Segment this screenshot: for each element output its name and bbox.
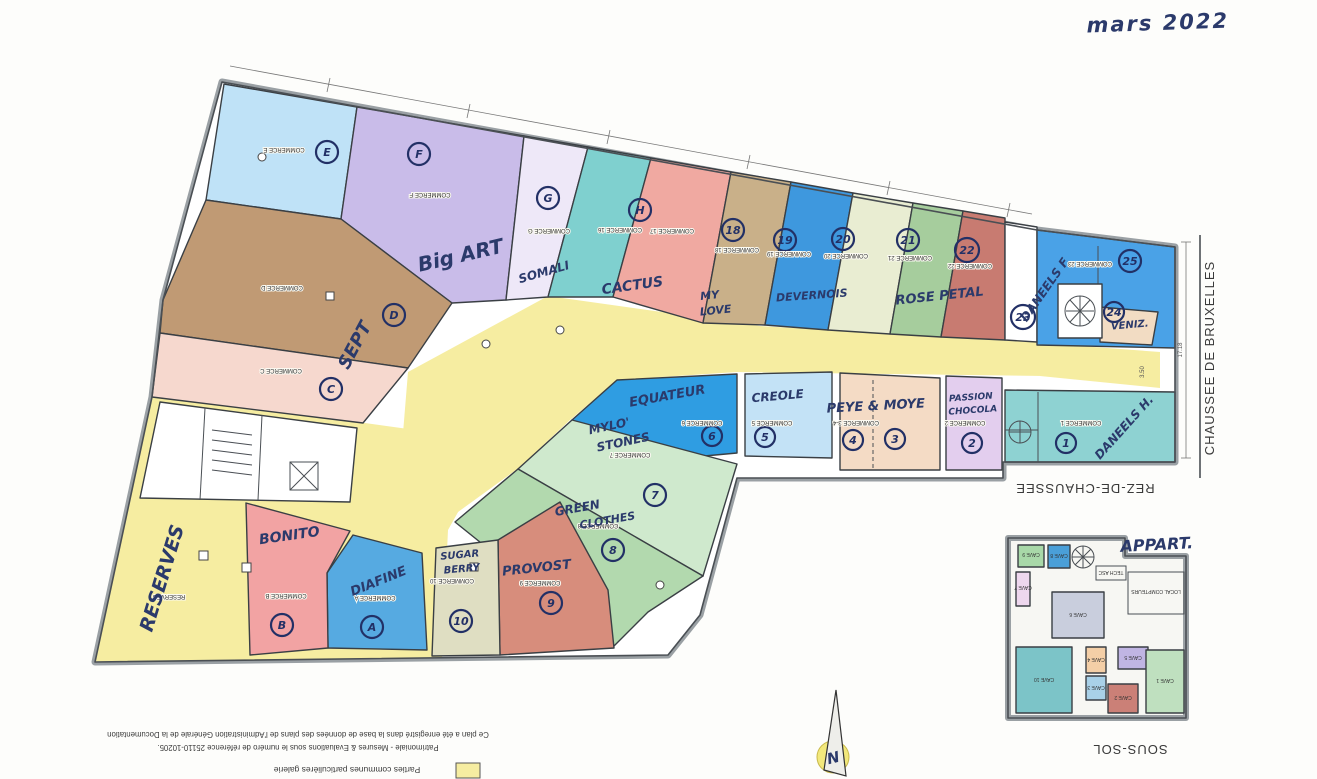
label-commerce-7: COMMERCE 7 (609, 451, 650, 457)
label-cave1: CAVE 1 (1156, 677, 1174, 683)
label-commerce-21: COMMERCE 21 (887, 254, 932, 260)
svg-text:4: 4 (848, 434, 857, 447)
label-cave3: CAVE 3 (1087, 684, 1105, 690)
svg-text:21: 21 (900, 234, 915, 247)
svg-text:20: 20 (835, 233, 851, 246)
label-commerce-20: COMMERCE 20 (823, 252, 868, 258)
label-cave10: CAVE 10 (1034, 676, 1054, 682)
svg-text:25: 25 (1122, 255, 1138, 268)
svg-text:G: G (543, 192, 552, 205)
svg-text:10: 10 (453, 615, 469, 628)
label-cave8: CAVE 8 (1050, 552, 1068, 558)
label-commerce-E: COMMERCE E (263, 146, 304, 152)
label-compteurs: LOCAL COMPTEURS (1131, 588, 1181, 594)
zone-A (327, 535, 427, 650)
svg-text:F: F (415, 148, 423, 161)
label-commerce-17: COMMERCE 17 (649, 227, 694, 233)
label-cave5: CAVE 5 (1124, 654, 1142, 660)
label-commerce-19: COMMERCE 19 (766, 250, 811, 256)
shop-name-my-love-1: MY (700, 288, 721, 303)
svg-text:H: H (635, 204, 644, 217)
svg-text:1: 1 (1062, 437, 1070, 450)
label-commerce-C: COMMERCE C (260, 367, 302, 373)
dimension-inner: 3.50 (1140, 366, 1146, 378)
svg-text:22: 22 (959, 244, 975, 257)
label-cave2: CAVE 2 (1114, 694, 1132, 700)
floor-label-basement: SOUS-SOL (1092, 742, 1167, 757)
svg-text:E: E (323, 146, 331, 159)
basement-inset: CAVE 9 CAVE 8 CAVE 7 TECH ASC LOCAL COMP… (1008, 538, 1186, 718)
label-commerce-6: COMMERCE 6 (681, 419, 722, 425)
basement-spiral-steps (1072, 546, 1094, 568)
registration-line-1: Ce plan a été enregistré dans la base de… (107, 730, 489, 739)
svg-text:5: 5 (761, 431, 769, 444)
label-commerce-18: COMMERCE 18 (714, 246, 759, 252)
svg-text:C: C (327, 383, 335, 396)
date-note: mars 2022 (1086, 9, 1229, 38)
label-commerce-D: COMMERCE D (261, 284, 303, 290)
label-commerce-23: COMMERCE 23 (1067, 260, 1112, 266)
label-commerce-9: COMMERCE 9 (519, 579, 560, 585)
label-commerce-2: COMMERCE 2 (944, 419, 985, 425)
label-cave4: CAVE 4 (1087, 656, 1105, 662)
label-commerce-16: COMMERCE 16 (597, 226, 642, 232)
label-cave9: CAVE 9 (1022, 551, 1040, 557)
svg-text:8: 8 (609, 544, 617, 557)
svg-text:3: 3 (891, 433, 899, 446)
label-commerce-3-4: COMMERCE 3-4 (832, 419, 879, 425)
svg-text:D: D (389, 309, 398, 322)
svg-text:9: 9 (547, 597, 555, 610)
svg-text:A: A (367, 621, 377, 634)
label-cave6: CAVE 6 (1069, 611, 1087, 617)
svg-text:6: 6 (708, 430, 716, 443)
label-commerce-22: COMMERCE 22 (947, 262, 992, 268)
label-commerce-G: COMMERCE G (528, 227, 570, 233)
svg-text:2: 2 (968, 437, 976, 450)
label-commerce-F: COMMERCE F (409, 191, 450, 197)
scanned-floor-plan: E F G H D C 18 19 20 21 22 23 24 25 1 2 … (0, 0, 1317, 779)
north-compass: N (817, 690, 849, 776)
street-name: CHAUSSEE DE BRUXELLES (1202, 261, 1217, 455)
registration-line-2: Patrimoniale - Mesures & Evaluations sou… (157, 743, 438, 752)
svg-text:7: 7 (651, 489, 659, 502)
label-commerce-B: COMMERCE B (265, 592, 306, 598)
apartment-note: APPART. (1118, 533, 1194, 556)
svg-text:18: 18 (725, 224, 741, 237)
floor-plan-svg: E F G H D C 18 19 20 21 22 23 24 25 1 2 … (0, 0, 1317, 779)
svg-text:B: B (278, 619, 286, 632)
svg-text:19: 19 (777, 234, 793, 247)
legend-label: Parties communes particulières galerie (274, 765, 421, 775)
spiral-stair-wing-steps (1066, 296, 1094, 326)
svg-text:24: 24 (1106, 306, 1121, 319)
svg-text:17.18: 17.18 (1178, 342, 1184, 358)
label-cave7: CAVE 7 (1014, 584, 1032, 590)
label-commerce-5: COMMERCE 5 (751, 419, 792, 425)
label-commerce-10: COMMERCE 10 (429, 577, 474, 583)
label-commerce-1: COMMERCE 1 (1060, 419, 1101, 425)
label-tech: TECH ASC (1098, 569, 1123, 575)
floor-label-ground: REZ-DE-CHAUSSEE (1015, 481, 1154, 496)
dimension-line-right: 17.18 (1178, 242, 1191, 458)
legend-swatch (456, 763, 480, 778)
